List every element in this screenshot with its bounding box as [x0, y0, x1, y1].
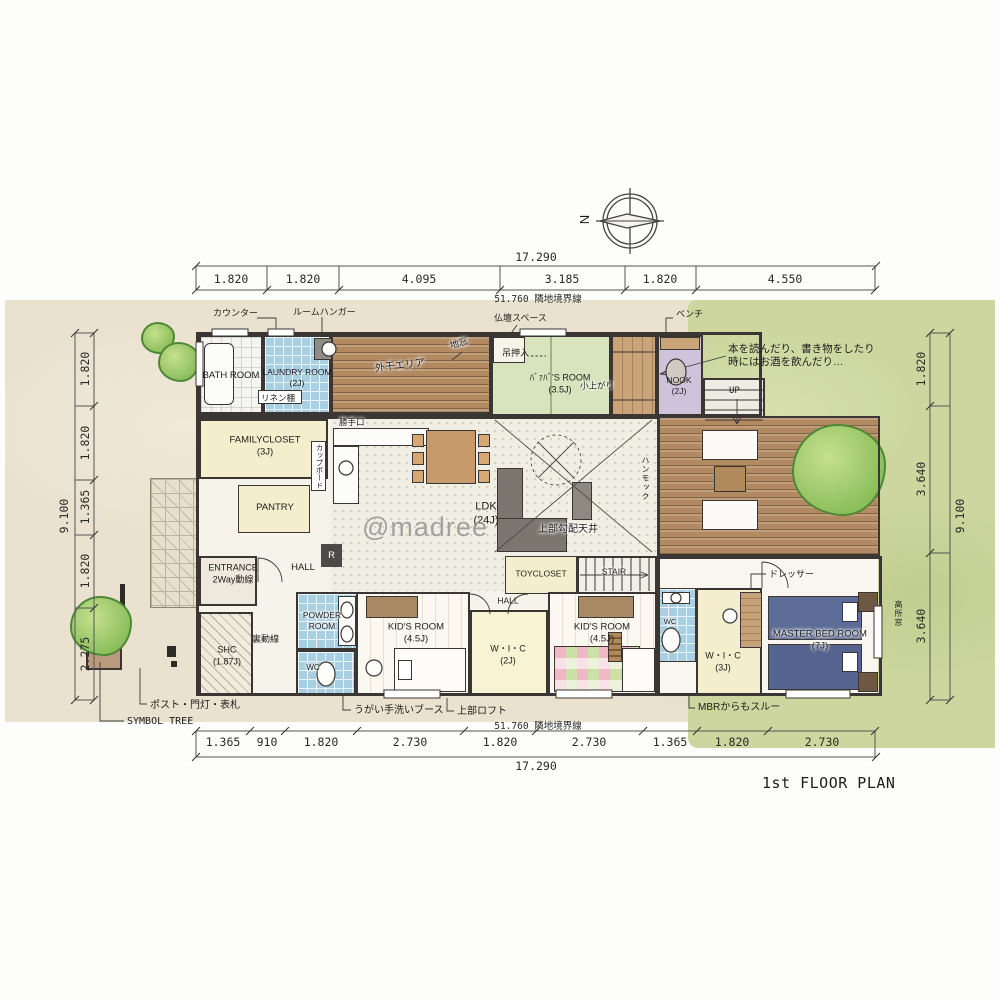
watermark: @madree [362, 512, 488, 543]
dim-right-connectors [930, 333, 950, 700]
dim-bot-1: 1.365 [206, 735, 241, 749]
label-hall2: HALL [497, 595, 518, 606]
ann-back-line: 裏動線 [252, 634, 279, 645]
ann-post: ポスト・門灯・表札 [150, 700, 240, 713]
powder-sink-2 [341, 626, 353, 642]
label-koagari: 小上がり [580, 380, 614, 391]
leader-gargle [343, 696, 351, 710]
dim-bot-6: 2.730 [572, 735, 607, 749]
kitchen-sink [339, 461, 353, 475]
label-toycloset: TOYCLOSET [515, 568, 566, 579]
toilet-1 [317, 662, 335, 686]
dim-left-3: 1.365 [78, 490, 92, 525]
powder-sink-1 [341, 602, 353, 618]
leader-symbol-tree [100, 662, 124, 721]
ann-nook-note: 本を読んだり、書き物をしたり時にはお酒を飲んだり… [728, 343, 875, 369]
dim-top-total: 17.290 [515, 250, 557, 264]
leader-post [140, 668, 147, 704]
ceiling-fan-blades [538, 442, 574, 478]
label-wc2: WC [664, 617, 677, 627]
leader-bench [666, 318, 673, 333]
dim-top-4: 3.185 [545, 272, 580, 286]
dim-right-1: 1.820 [914, 352, 928, 387]
label-master: MASTER BED ROOM(7J) [773, 629, 867, 654]
dim-left-4: 1.820 [78, 554, 92, 589]
dim-bot-3: 1.820 [304, 735, 339, 749]
dim-right-total: 9.100 [953, 499, 967, 534]
door-arcs [258, 558, 788, 614]
label-hall1: HALL [291, 562, 315, 574]
label-wc1: WC [306, 663, 319, 673]
koagari-steps [613, 352, 655, 400]
compass-n-text: N [577, 215, 592, 224]
label-shc: SHC(1.87J) [213, 644, 241, 667]
linework-overlay [0, 0, 1000, 1000]
compass-icon [596, 188, 664, 254]
ann-symbol-tree: SYMBOL TREE [127, 716, 193, 729]
dim-left-5: 2.275 [78, 637, 92, 672]
boundary-top: 51.760 隣地境界線 [494, 291, 582, 305]
ann-loft: 上部ロフト [457, 706, 507, 719]
ann-kitchen-door: 勝手口 [339, 417, 365, 428]
dim-bot-2: 910 [257, 735, 278, 749]
label-entrance: ENTRANCE2Way動線 [208, 562, 258, 585]
booth-basin [366, 660, 382, 676]
plan-title: 1st FLOOR PLAN [762, 774, 895, 792]
label-wic3: W・I・C(3J) [705, 650, 741, 673]
ann-room-hanger: ルームハンガー [293, 307, 356, 318]
dim-bot-7: 1.365 [653, 735, 688, 749]
ann-bench: ベンチ [676, 309, 703, 320]
leader-loft [447, 698, 454, 711]
dim-bottom-total: 17.290 [515, 759, 557, 773]
label-wic2: W・I・C(2J) [490, 643, 526, 666]
dim-right-2: 3.640 [914, 462, 928, 497]
label-kids2: KID'S ROOM(4.5J) [574, 622, 630, 647]
label-family-closet: FAMILYCLOSET(3J) [229, 435, 300, 460]
dim-top-6: 4.550 [768, 272, 803, 286]
ann-high-window: 高所窓 [893, 600, 903, 627]
label-stair: STAIR [602, 566, 626, 577]
ann-mbr-through: MBRからもスルー [698, 702, 780, 715]
ann-gargle-booth: うがい手洗いブース [354, 705, 444, 718]
dim-bot-9: 2.730 [805, 735, 840, 749]
ann-hammock: ハンモック [640, 456, 650, 501]
dim-bottom-connectors [196, 731, 875, 757]
ann-counter: カウンター [213, 308, 258, 319]
label-kids1: KID'S ROOM(4.5J) [388, 622, 444, 647]
dim-top-5: 1.820 [643, 272, 678, 286]
label-laundry: LAUNDRY ROOM(2J) [262, 367, 331, 389]
dim-right-3: 3.640 [914, 609, 928, 644]
ann-sloped-ceiling: 上部勾配天井 [538, 524, 598, 537]
ann-tsuri-oshiire: 吊押入 [502, 348, 529, 359]
dim-left-1: 1.820 [78, 352, 92, 387]
label-pantry: PANTRY [256, 502, 294, 514]
dim-top-3: 4.095 [402, 272, 437, 286]
leader-butsudan [509, 325, 517, 336]
leader-mbr-through [689, 696, 695, 708]
washer-door [322, 342, 336, 356]
label-powder: POWDERROOM [303, 610, 341, 632]
label-nook: NOOK(2J) [666, 375, 691, 397]
dresser-stool [723, 609, 737, 623]
leader-jimado [452, 352, 462, 360]
dim-left-total: 9.100 [57, 499, 71, 534]
ann-butsudan: 仏壇スペース [494, 313, 547, 324]
dim-bot-4: 2.730 [393, 735, 428, 749]
boundary-bottom: 51.760 隣地境界線 [494, 718, 582, 732]
dim-bottom-ticks [192, 727, 880, 761]
ann-dresser: ドレッサー [769, 569, 814, 580]
ann-up: UP [729, 386, 740, 397]
toilet-2 [662, 628, 680, 652]
dim-bot-5: 1.820 [483, 735, 518, 749]
dim-left-2: 1.820 [78, 426, 92, 461]
label-bathroom: BATH ROOM [203, 370, 260, 382]
dim-top-2: 1.820 [286, 272, 321, 286]
dim-bot-8: 1.820 [715, 735, 750, 749]
wc2-basin [671, 593, 681, 603]
floor-plan-canvas: リネン棚 カップボード R [0, 0, 1000, 1000]
leader-dresser [751, 574, 766, 589]
dim-top-1: 1.820 [214, 272, 249, 286]
compass-n-label: N [577, 215, 592, 224]
